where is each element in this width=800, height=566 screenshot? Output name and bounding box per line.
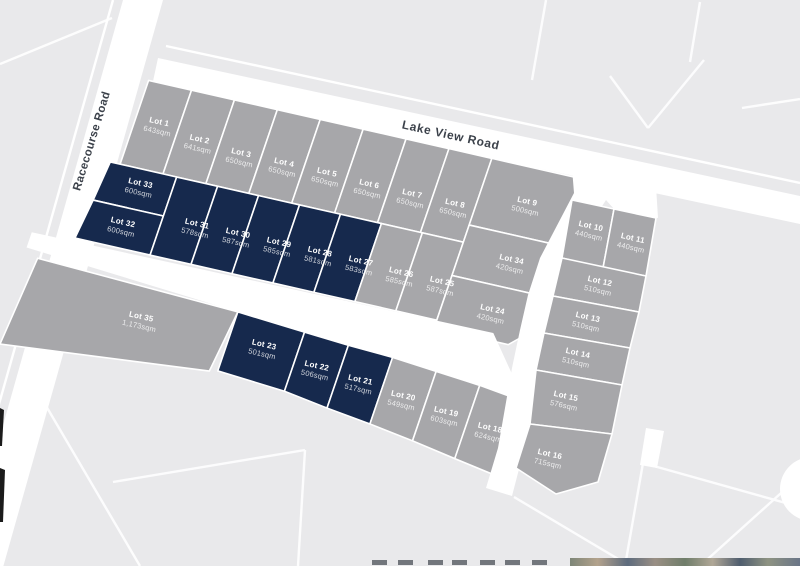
cutoff-fragment — [372, 560, 387, 565]
map-canvas: Lot 1643sqmLot 2641sqmLot 3650sqmLot 465… — [0, 0, 800, 566]
cutoff-fragment — [398, 560, 413, 565]
cutoff-fragment — [480, 560, 495, 565]
cutoff-fragment — [428, 560, 443, 565]
cutoff-fragment — [532, 560, 547, 565]
cutoff-fragment — [505, 560, 520, 565]
subdivision-map: Lot 1643sqmLot 2641sqmLot 3650sqmLot 465… — [0, 0, 800, 566]
photo-strip — [570, 558, 800, 566]
cutoff-fragment — [452, 560, 467, 565]
